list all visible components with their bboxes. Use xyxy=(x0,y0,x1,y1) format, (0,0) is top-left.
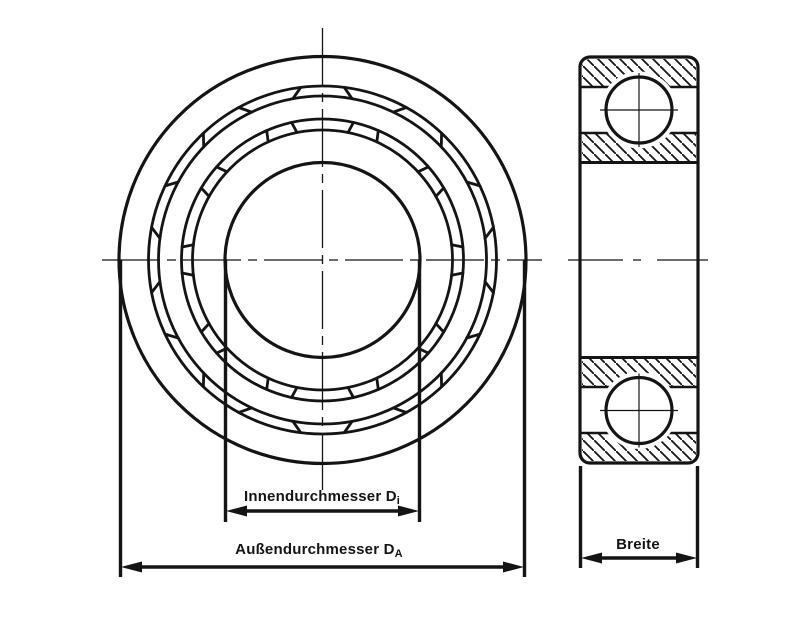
inner-diameter-label-subscript: i xyxy=(397,495,400,507)
ball-silhouette-edge xyxy=(267,131,269,142)
ball-silhouette-edge xyxy=(182,245,193,247)
ball-silhouette-edge xyxy=(292,388,298,398)
bearing-front-view xyxy=(102,28,542,490)
ball-silhouette-edge xyxy=(267,378,269,389)
width-label: Breite xyxy=(616,536,660,553)
ball-silhouette-edge xyxy=(393,108,406,113)
ball-silhouette-edge xyxy=(452,245,463,247)
arrowhead-right xyxy=(676,553,697,564)
bearing-side-view xyxy=(568,57,708,463)
ball-silhouette-edge xyxy=(182,273,193,275)
ball-silhouette-edge xyxy=(418,167,428,172)
ball-silhouette-edge xyxy=(239,408,252,413)
ball-silhouette-edge xyxy=(152,282,160,293)
ball-silhouette-edge xyxy=(377,378,379,389)
arrowhead-left xyxy=(121,562,142,573)
ball-silhouette-edge xyxy=(348,122,354,132)
technical-drawing-canvas: Innendurchmesser Di Außendurchmesser DA … xyxy=(0,0,800,627)
outer-diameter-label-subscript: A xyxy=(395,548,403,560)
bearing-drawing-svg xyxy=(0,0,800,627)
inner-diameter-label-text: Innendurchmesser D xyxy=(244,488,397,505)
width-label-text: Breite xyxy=(616,536,660,553)
ball-silhouette-edge xyxy=(201,324,209,332)
inner-diameter-label: Innendurchmesser Di xyxy=(244,488,400,505)
ball-silhouette-edge xyxy=(377,131,379,142)
ball-silhouette-edge xyxy=(436,324,444,332)
ball-silhouette-edge xyxy=(485,282,493,293)
arrowhead-left xyxy=(581,553,602,564)
outer-diameter-label: Außendurchmesser DA xyxy=(235,541,403,558)
arrowhead-right xyxy=(398,506,419,517)
ball-silhouette-edge xyxy=(485,227,493,238)
arrowhead-left xyxy=(226,506,247,517)
ball-silhouette-edge xyxy=(393,408,406,413)
ball-silhouette-edge xyxy=(292,122,298,132)
arrowhead-right xyxy=(503,562,524,573)
ball-silhouette-edge xyxy=(217,167,227,172)
ball-silhouette-edge xyxy=(452,273,463,275)
ball-silhouette-edge xyxy=(239,108,252,113)
ball-silhouette-edge xyxy=(152,227,160,238)
ball-silhouette-edge xyxy=(348,388,354,398)
ball-silhouette-edge xyxy=(436,188,444,196)
ball-silhouette-edge xyxy=(201,188,209,196)
outer-diameter-label-text: Außendurchmesser D xyxy=(235,541,394,558)
